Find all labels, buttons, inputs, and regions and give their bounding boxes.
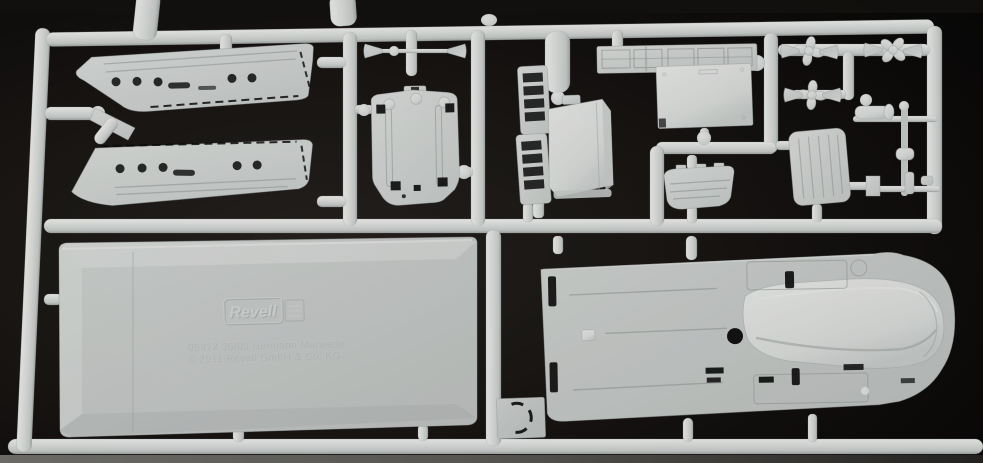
vignette-overlay	[0, 0, 983, 463]
photo-model-kit-sprue: Revell Revell 05812 36/00 Hermann Marwed…	[0, 0, 983, 463]
sprue-photo-canvas: Revell Revell 05812 36/00 Hermann Marwed…	[0, 0, 983, 463]
